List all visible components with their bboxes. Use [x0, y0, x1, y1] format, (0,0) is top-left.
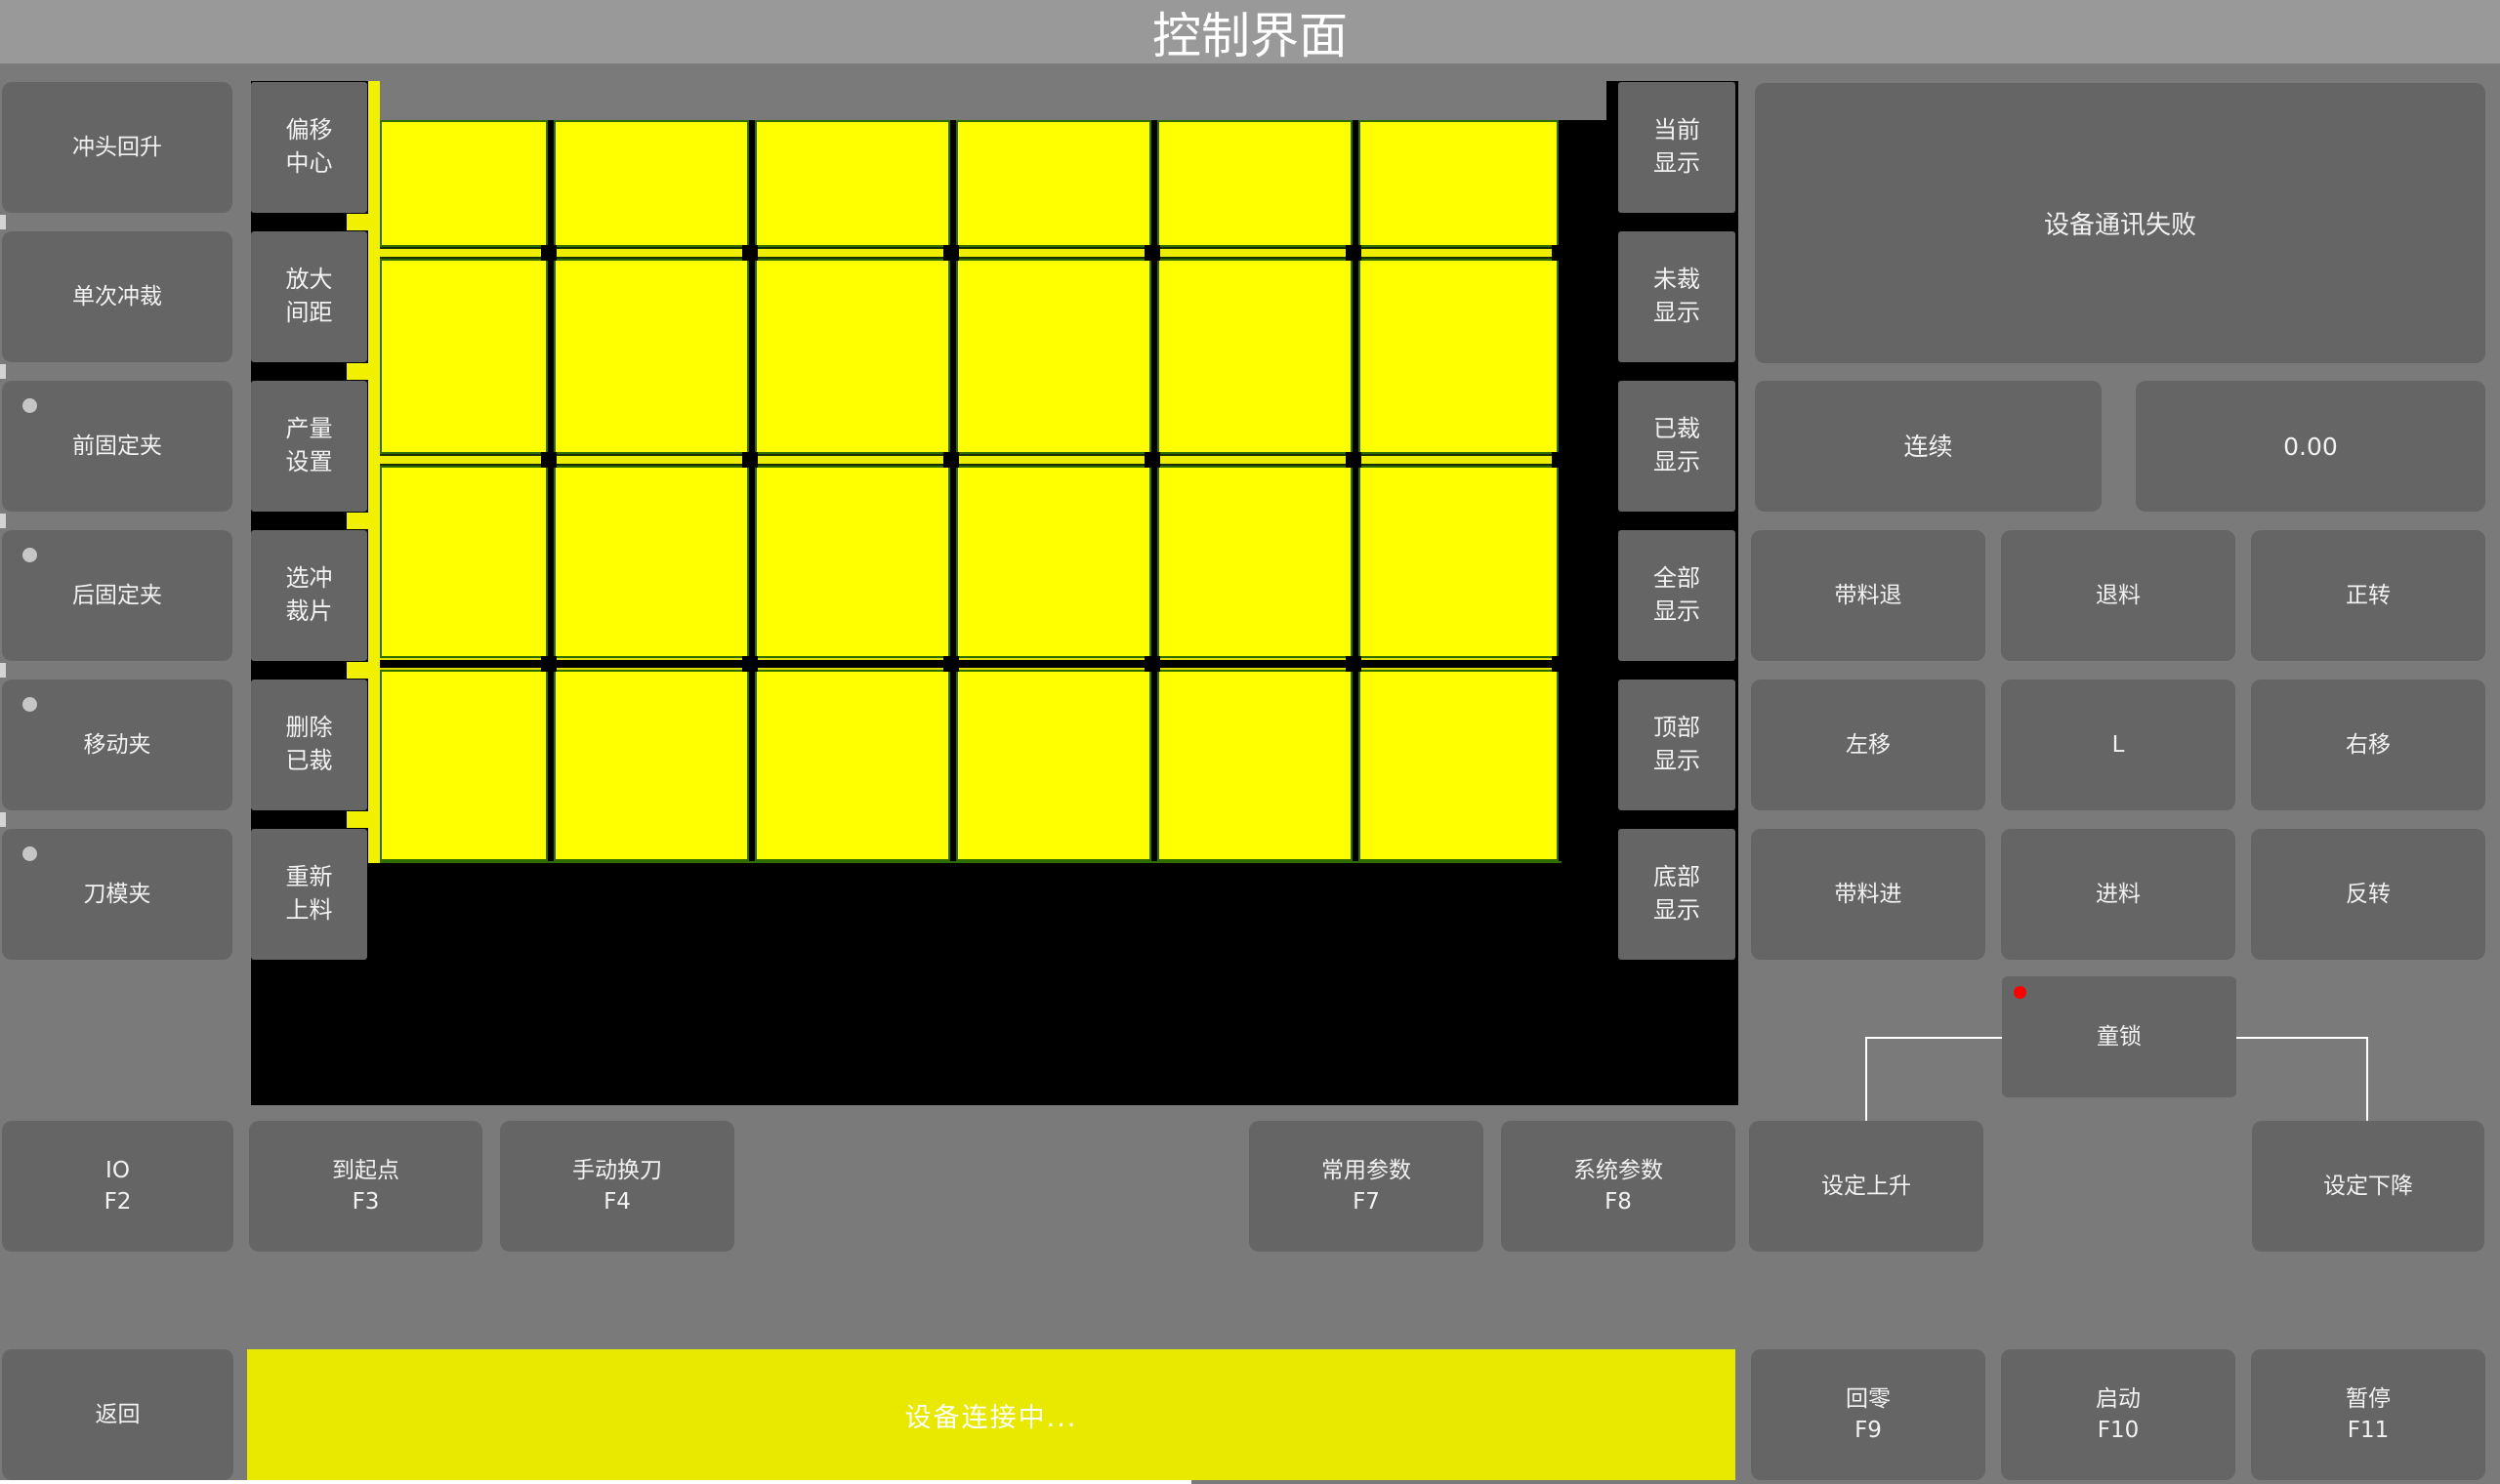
- button-label: 反转: [2346, 879, 2391, 910]
- sheet-cell[interactable]: [956, 120, 1151, 247]
- button-label: 进料: [2096, 879, 2141, 910]
- cut-tick: [1346, 452, 1361, 468]
- button-common-params-f7[interactable]: 常用参数F7: [1249, 1121, 1483, 1252]
- sheet-cell[interactable]: [554, 466, 749, 658]
- sheet-cell[interactable]: [1358, 120, 1559, 247]
- button-label: 启动: [2096, 1383, 2141, 1415]
- button-start-f10[interactable]: 启动F10: [2001, 1349, 2235, 1480]
- indicator-dot: [22, 548, 37, 562]
- cut-tick: [1552, 656, 1567, 672]
- cut-line: [380, 658, 1562, 670]
- button-label: 删除: [286, 712, 333, 745]
- button-rear-clamp[interactable]: 后固定夹: [2, 530, 232, 661]
- fkey-label: F11: [2348, 1415, 2390, 1446]
- button-select-piece[interactable]: 选冲裁片: [251, 530, 367, 661]
- fkey-label: F8: [1604, 1186, 1632, 1217]
- comm-status-text: 设备通讯失败: [2044, 205, 2196, 241]
- value-text: 0.00: [2283, 430, 2338, 464]
- button-back[interactable]: 返回: [2, 1349, 233, 1480]
- sheet-cell[interactable]: [1157, 120, 1353, 247]
- button-label: 显示: [1653, 446, 1700, 479]
- button-reload-material[interactable]: 重新上料: [251, 829, 367, 960]
- fkey-label: F4: [604, 1186, 631, 1217]
- material-edge-notch: [347, 811, 368, 828]
- button-move-left[interactable]: 左移: [1751, 680, 1985, 810]
- cut-tick: [1552, 452, 1567, 468]
- sheet-cell[interactable]: [755, 670, 950, 861]
- button-label: 设定上升: [1821, 1171, 1911, 1202]
- button-label: 手动换刀: [572, 1155, 662, 1186]
- fkey-label: F3: [353, 1186, 380, 1217]
- button-label: 前固定夹: [72, 431, 162, 462]
- button-label: IO: [105, 1155, 130, 1186]
- sheet-cell[interactable]: [1157, 259, 1353, 454]
- button-label: 中心: [286, 147, 333, 181]
- button-label: 后固定夹: [72, 580, 162, 611]
- edge-marker: [0, 663, 6, 678]
- button-punch-return[interactable]: 冲头回升: [2, 82, 232, 213]
- button-die-clamp[interactable]: 刀模夹: [2, 829, 232, 960]
- button-label: 显示: [1653, 596, 1700, 629]
- sheet-cell[interactable]: [380, 120, 548, 247]
- cut-line: [380, 247, 1562, 259]
- cut-tick: [943, 245, 959, 261]
- cut-tick: [1145, 452, 1160, 468]
- cut-tick: [943, 656, 959, 672]
- button-reverse-rotate[interactable]: 反转: [2251, 829, 2485, 960]
- page-title: 控制界面: [1152, 0, 1348, 67]
- button-label: 裁片: [286, 596, 333, 629]
- cut-tick: [1552, 245, 1567, 261]
- sheet-cell[interactable]: [1358, 670, 1559, 861]
- fkey-label: F10: [2098, 1415, 2140, 1446]
- button-label: 已裁: [286, 745, 333, 778]
- button-label: 移动夹: [84, 729, 151, 761]
- material-edge-notch: [347, 214, 368, 230]
- button-yield-setting[interactable]: 产量设置: [251, 381, 367, 512]
- button-label: 显示: [1653, 297, 1700, 330]
- button-label: 设置: [286, 446, 333, 479]
- connection-status-bar: 设备连接中...: [247, 1349, 1735, 1480]
- sheet-cell[interactable]: [1157, 670, 1353, 861]
- material-edge-notch: [347, 363, 368, 380]
- button-label: 带料进: [1835, 879, 1902, 910]
- fkey-label: F9: [1854, 1415, 1882, 1446]
- button-label: 显示: [1653, 147, 1700, 181]
- sheet-cell[interactable]: [755, 120, 950, 247]
- button-show-bottom[interactable]: 底部显示: [1618, 829, 1735, 960]
- indicator-dot: [22, 846, 37, 861]
- button-show-cut[interactable]: 已裁显示: [1618, 381, 1735, 512]
- cut-tick: [742, 245, 758, 261]
- button-child-lock[interactable]: 童锁: [2002, 976, 2236, 1097]
- sheet-cell[interactable]: [1358, 466, 1559, 658]
- button-manual-toolchange-f4[interactable]: 手动换刀F4: [500, 1121, 734, 1252]
- value-display[interactable]: 0.00: [2136, 381, 2485, 512]
- piece-grid: [380, 120, 1562, 863]
- button-label: 正转: [2346, 580, 2391, 611]
- button-move-right[interactable]: 右移: [2251, 680, 2485, 810]
- button-label: 右移: [2346, 729, 2391, 761]
- button-feed-material[interactable]: 进料: [2001, 829, 2235, 960]
- connector-line: [2366, 1037, 2368, 1121]
- edge-marker: [0, 364, 6, 379]
- button-label: 刀模夹: [84, 879, 151, 910]
- button-strip-back[interactable]: 带料退: [1751, 530, 1985, 661]
- button-l[interactable]: L: [2001, 680, 2235, 810]
- button-moving-clamp[interactable]: 移动夹: [2, 680, 232, 810]
- button-label: 顶部: [1653, 712, 1700, 745]
- sheet-cell[interactable]: [956, 259, 1151, 454]
- button-label: 间距: [286, 297, 333, 330]
- button-show-current[interactable]: 当前显示: [1618, 82, 1735, 213]
- fkey-label: F2: [104, 1186, 132, 1217]
- button-label: 回零: [1846, 1383, 1891, 1415]
- control-screen: 控制界面 冲头回升 单次冲裁 前固定夹 后固定夹 移动夹 刀模夹 偏移中心 放大…: [0, 0, 2500, 1484]
- indicator-dot: [22, 398, 37, 413]
- button-label: 重新: [286, 861, 333, 894]
- button-label: 上料: [286, 894, 333, 927]
- sheet-cell[interactable]: [554, 120, 749, 247]
- button-label: 显示: [1653, 894, 1700, 927]
- button-label: 冲头回升: [72, 132, 162, 163]
- button-label: 单次冲裁: [72, 281, 162, 312]
- edge-marker: [0, 514, 6, 528]
- button-show-uncut[interactable]: 未裁显示: [1618, 231, 1735, 362]
- sheet-cell[interactable]: [380, 259, 548, 454]
- button-label: 选冲: [286, 562, 333, 596]
- edge-marker: [0, 812, 6, 827]
- comm-status-panel: 设备通讯失败: [1755, 83, 2485, 363]
- button-show-top[interactable]: 顶部显示: [1618, 680, 1735, 810]
- button-front-clamp[interactable]: 前固定夹: [2, 381, 232, 512]
- material-edge-stripe: [368, 81, 380, 863]
- cut-tick: [742, 452, 758, 468]
- button-forward-rotate[interactable]: 正转: [2251, 530, 2485, 661]
- cut-tick: [1346, 245, 1361, 261]
- button-single-punch[interactable]: 单次冲裁: [2, 231, 232, 362]
- button-label: 带料退: [1835, 580, 1902, 611]
- button-label: 退料: [2096, 580, 2141, 611]
- button-label: 未裁: [1653, 264, 1700, 297]
- sheet-cell[interactable]: [1358, 259, 1559, 454]
- button-show-all[interactable]: 全部显示: [1618, 530, 1735, 661]
- connector-line: [1865, 1037, 1867, 1121]
- button-label: 设定下降: [2323, 1171, 2413, 1202]
- button-home-f9[interactable]: 回零F9: [1751, 1349, 1985, 1480]
- title-bar: 控制界面: [0, 0, 2500, 63]
- canvas-top-margin: [380, 81, 1606, 120]
- sheet-cell[interactable]: [380, 670, 548, 861]
- cut-tick: [1346, 656, 1361, 672]
- sheet-cell[interactable]: [956, 670, 1151, 861]
- button-set-descend[interactable]: 设定下降: [2252, 1121, 2484, 1252]
- cut-tick: [742, 656, 758, 672]
- cut-line: [380, 454, 1562, 466]
- button-label: 已裁: [1653, 413, 1700, 446]
- sheet-cell[interactable]: [1157, 466, 1353, 658]
- button-zoom-spacing[interactable]: 放大间距: [251, 231, 367, 362]
- cut-tick: [943, 452, 959, 468]
- button-label: 到起点: [332, 1155, 399, 1186]
- button-label: 当前: [1653, 114, 1700, 147]
- fkey-label: F7: [1353, 1186, 1380, 1217]
- alert-dot: [2014, 986, 2026, 999]
- button-label: 暂停: [2346, 1383, 2391, 1415]
- button-label: 偏移: [286, 114, 333, 147]
- sheet-bottom-edge: [380, 861, 1562, 863]
- button-eject-material[interactable]: 退料: [2001, 530, 2235, 661]
- button-io-f2[interactable]: IOF2: [2, 1121, 233, 1252]
- button-label: 放大: [286, 264, 333, 297]
- button-continuous-mode[interactable]: 连续: [1755, 381, 2102, 512]
- button-label: 产量: [286, 413, 333, 446]
- button-label: 童锁: [2097, 1021, 2142, 1052]
- bottom-edge-line: [0, 1480, 1191, 1484]
- button-label: 系统参数: [1573, 1155, 1663, 1186]
- sheet-cell[interactable]: [755, 259, 950, 454]
- connector-line: [2236, 1037, 2367, 1039]
- button-label: L: [2112, 729, 2125, 761]
- button-strip-feed[interactable]: 带料进: [1751, 829, 1985, 960]
- sheet-cell[interactable]: [956, 466, 1151, 658]
- indicator-dot: [22, 697, 37, 712]
- button-label: 左移: [1846, 729, 1891, 761]
- button-label: 全部: [1653, 562, 1700, 596]
- button-label: 显示: [1653, 745, 1700, 778]
- cut-tick: [1145, 656, 1160, 672]
- button-label: 连续: [1903, 430, 1952, 464]
- button-label: 常用参数: [1321, 1155, 1411, 1186]
- connection-status-text: 设备连接中...: [905, 1396, 1078, 1434]
- cut-tick: [1145, 245, 1160, 261]
- button-label: 底部: [1653, 861, 1700, 894]
- connector-line: [1865, 1037, 2002, 1039]
- button-system-params-f8[interactable]: 系统参数F8: [1501, 1121, 1735, 1252]
- material-edge-notch: [347, 513, 368, 529]
- sheet-cell[interactable]: [380, 466, 548, 658]
- button-delete-cut[interactable]: 删除已裁: [251, 680, 367, 810]
- button-to-origin-f3[interactable]: 到起点F3: [249, 1121, 482, 1252]
- sheet-cell[interactable]: [554, 259, 749, 454]
- sheet-cell[interactable]: [554, 670, 749, 861]
- button-set-rise[interactable]: 设定上升: [1749, 1121, 1983, 1252]
- button-pause-f11[interactable]: 暂停F11: [2251, 1349, 2485, 1480]
- button-offset-center[interactable]: 偏移中心: [251, 82, 367, 213]
- sheet-cell[interactable]: [755, 466, 950, 658]
- material-edge-notch: [347, 662, 368, 679]
- cut-divider: [549, 120, 553, 670]
- button-label: 返回: [96, 1399, 141, 1430]
- edge-marker: [0, 215, 6, 229]
